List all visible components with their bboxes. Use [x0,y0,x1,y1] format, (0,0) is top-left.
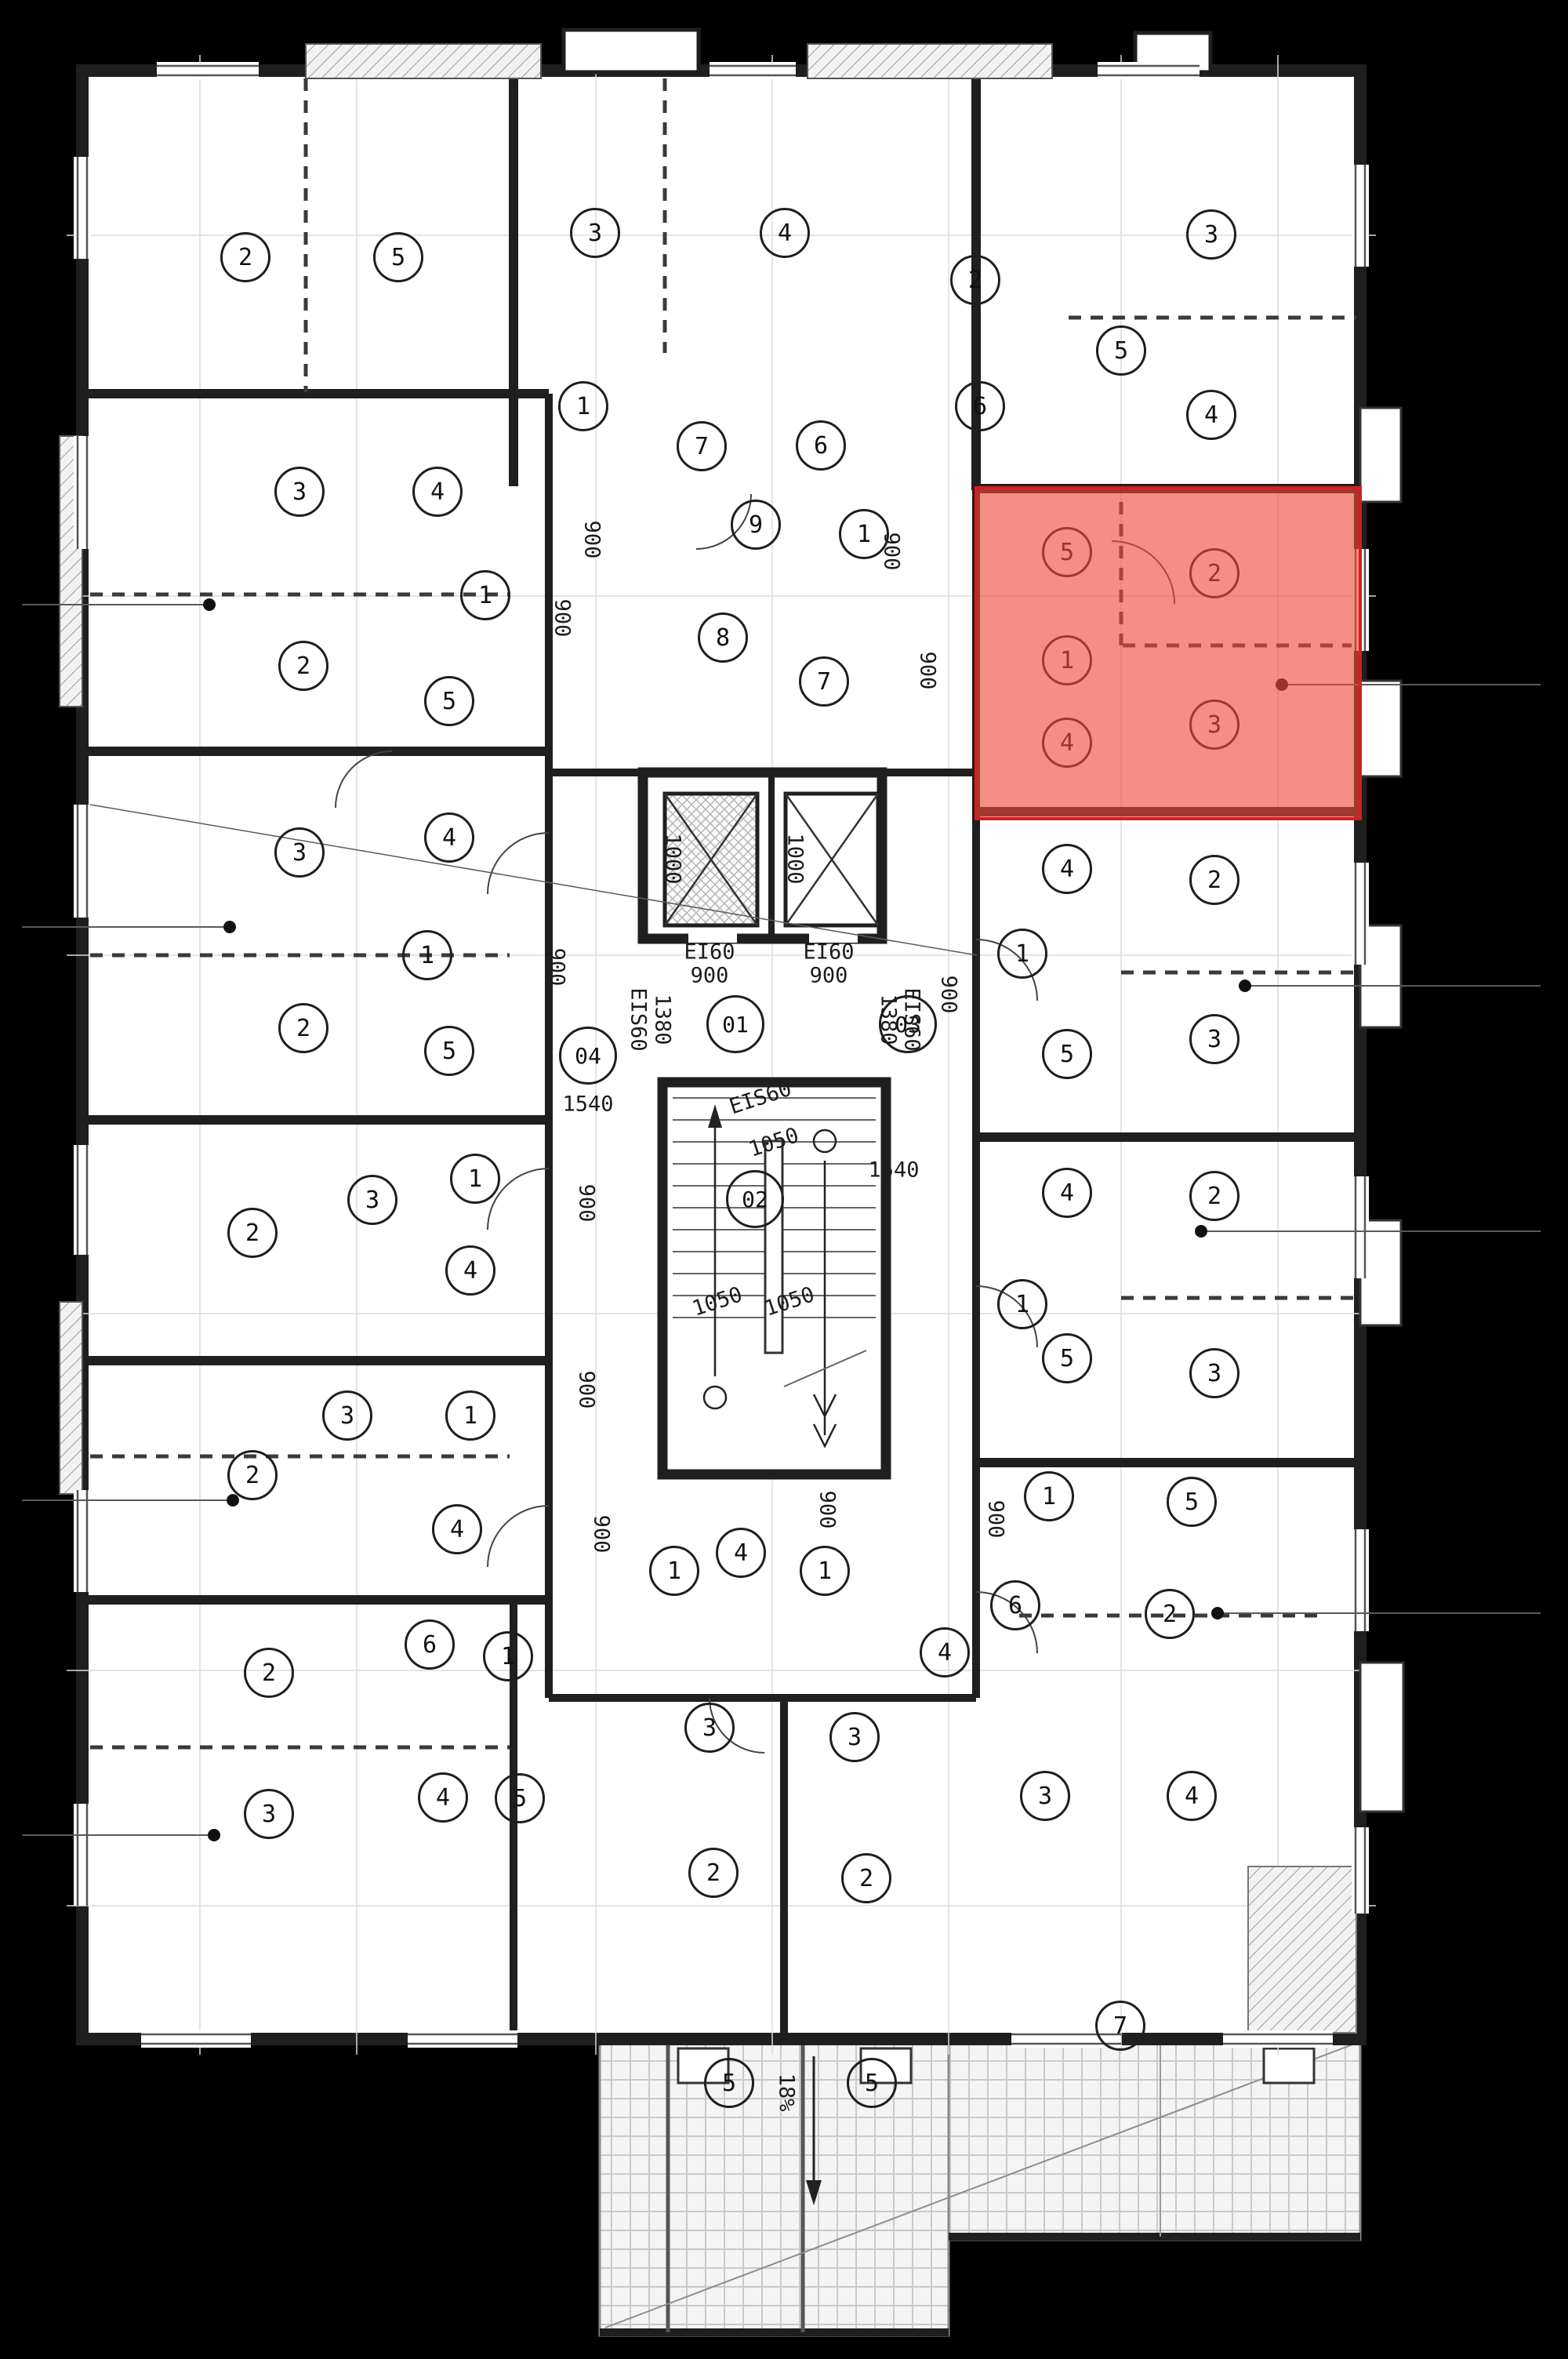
terrace-step [1264,2048,1314,2083]
terrace-step [678,2048,728,2083]
highlighted-apartment[interactable] [975,486,1362,820]
floor-plan: 2534235641763491521871254334421125531324… [0,0,1568,2359]
building-outline [82,71,1360,2039]
stairwell [662,1082,886,1474]
elevator-core [643,772,882,943]
terrace-step [861,2048,911,2083]
floor-plan-drawing [0,0,1568,2359]
